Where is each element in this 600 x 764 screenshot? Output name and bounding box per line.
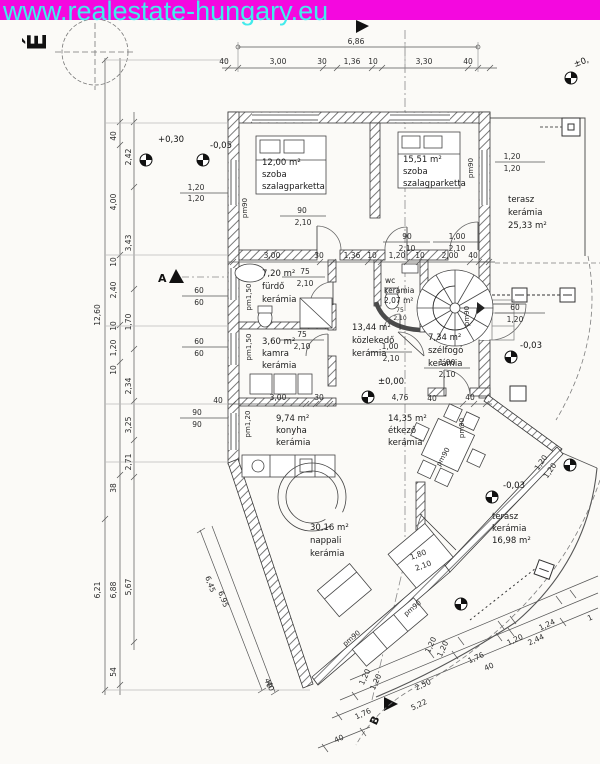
room-area: 30,16 m²	[310, 523, 349, 533]
dim-label: 10	[109, 321, 118, 331]
room-floor: kerámia	[428, 359, 462, 369]
parapet-label: pm1,50	[245, 284, 253, 311]
dim-label: 40	[213, 396, 223, 405]
dim-label: 38	[109, 483, 118, 493]
dim-label: 3,25	[124, 416, 133, 433]
floor-plan-canvas: É B A B	[0, 0, 600, 764]
dim-label: 90	[402, 232, 412, 241]
dim-label: 2,42	[124, 148, 133, 165]
site-url: www.realestate-hungary.eu	[3, 0, 328, 27]
dim-label: 2,10	[295, 218, 312, 227]
dim-label: 3,00	[270, 393, 287, 402]
dim-label: 60	[194, 298, 204, 307]
room-area: 12,00 m²	[262, 158, 301, 168]
room-name: fürdő	[262, 282, 284, 292]
level-label: +0,30	[158, 135, 184, 145]
room-floor: kerámia	[310, 549, 344, 559]
dim-label: 30	[314, 251, 324, 260]
dim-label: 10	[415, 251, 425, 260]
dim-label: 60	[194, 337, 204, 346]
dim-label: 40	[468, 251, 478, 260]
room-floor: szalagparketta	[262, 182, 325, 192]
dim-label: 90	[192, 408, 202, 417]
room-area: 9,74 m²	[276, 414, 309, 424]
room-name: nappali	[310, 536, 341, 546]
dim-label: 1,20	[504, 164, 521, 173]
room-floor: kerámia	[388, 438, 422, 448]
dim-label: 2,10	[393, 315, 407, 322]
dim-label: 1,20	[507, 315, 524, 324]
dim-label: 1,36	[344, 251, 361, 260]
dim-label: 4,00	[109, 193, 118, 210]
dim-label: 30	[317, 57, 327, 66]
dim-label: 2,34	[124, 377, 133, 394]
dim-label: 2,10	[297, 279, 314, 288]
dim-label: 40	[109, 131, 118, 141]
dim-label: 1,70	[124, 313, 133, 330]
dim-label: 40	[219, 57, 229, 66]
parapet-label: pm90	[463, 306, 471, 326]
dim-label: 1,20	[188, 183, 205, 192]
dim-label: 90	[192, 420, 202, 429]
dim-label: 3,00	[270, 57, 287, 66]
parapet-label: pm1,50	[245, 334, 253, 361]
level-label: -0,05	[210, 141, 232, 151]
dim-label: 54	[109, 667, 118, 677]
room-name: terasz	[492, 512, 519, 522]
room-floor: kerámia	[262, 295, 296, 305]
room-name: szoba	[403, 167, 428, 177]
dim-label: 2,10	[449, 244, 466, 253]
dim-label: 10	[109, 365, 118, 375]
dim-label: 1,20	[109, 339, 118, 356]
room-area: 7,20 m²	[262, 269, 295, 279]
room-floor: kerámia	[262, 361, 296, 371]
room-name: közlekedő	[352, 336, 394, 346]
level-label: ±0,00	[378, 377, 404, 387]
room-floor: kerámia	[508, 208, 542, 218]
level-label: -0,03	[503, 481, 525, 491]
section-a-label: A	[158, 272, 167, 285]
dim-label: 3,00	[264, 251, 281, 260]
room-floor: kerámia	[276, 438, 310, 448]
dim-label: 6,21	[93, 581, 102, 598]
room-name: kamra	[262, 349, 289, 359]
dim-label: 60	[194, 286, 204, 295]
dim-label: 60	[510, 303, 520, 312]
parapet-label: pm1,20	[244, 411, 252, 438]
dim-label: 90	[297, 206, 307, 215]
parapet-label: pm90	[467, 158, 475, 178]
room-floor: kerámia	[352, 349, 386, 359]
dim-label: 10	[368, 57, 378, 66]
parapet-label: pm90	[458, 418, 466, 438]
dim-label: 5,67	[124, 578, 133, 595]
room-area: 15,51 m²	[403, 155, 442, 165]
room-area: 25,33 m²	[508, 221, 547, 231]
dim-label: 40	[427, 394, 437, 403]
room-floor: kerámia	[492, 524, 526, 534]
dim-label: 40	[463, 57, 473, 66]
dim-label: 10	[109, 257, 118, 267]
dim-label: 2,10	[399, 244, 416, 253]
room-name: terasz	[508, 195, 535, 205]
room-name: étkező	[388, 425, 416, 436]
room-name: konyha	[276, 426, 307, 436]
dim-label: 1,20	[188, 194, 205, 203]
room-area: 2,07 m²	[384, 296, 413, 305]
dim-total-top: 6,86	[348, 37, 365, 46]
dim-label: 4,76	[392, 393, 409, 402]
room-name: szoba	[262, 170, 287, 180]
dim-label: 3,43	[124, 234, 133, 251]
room-name: wc	[385, 276, 395, 285]
dim-label: 10	[367, 251, 377, 260]
room-area: 3,60 m²	[262, 337, 295, 347]
parapet-label: pm90	[241, 198, 249, 218]
room-konyha: 9,74 m² konyha kerámia	[276, 414, 310, 448]
dim-label: 2,71	[124, 453, 133, 470]
dim-label: 1,20	[504, 152, 521, 161]
room-area: 16,98 m²	[492, 536, 531, 546]
level-label: -0,03	[520, 341, 542, 351]
dim-label: 30	[314, 393, 324, 402]
dim-label: 2,10	[439, 370, 456, 379]
room-area: 13,44 m²	[352, 323, 391, 333]
room-area: 14,35 m²	[388, 414, 427, 424]
dim-label: 1,00	[449, 232, 466, 241]
dim-label: 75	[300, 267, 310, 276]
dim-label: 75	[297, 330, 307, 339]
dim-label: 40	[465, 393, 475, 402]
dim-label: 12,60	[93, 304, 102, 326]
room-area: 7,34 m²	[428, 333, 461, 343]
dim-label: 60	[194, 349, 204, 358]
north-label: É	[21, 33, 53, 51]
dim-label: 75	[396, 307, 404, 314]
room-floor: kerámia	[384, 286, 414, 295]
dim-label: 1,36	[344, 57, 361, 66]
room-szelfogo: 7,34 m² szélfogó kerámia	[428, 333, 463, 369]
dim-label: 6,88	[109, 581, 118, 598]
room-name: szélfogó	[428, 345, 463, 356]
dim-label: 3,30	[416, 57, 433, 66]
room-floor: szalagparketta	[403, 179, 466, 189]
dim-label: 2,10	[294, 342, 311, 351]
dim-label: 2,40	[109, 281, 118, 298]
